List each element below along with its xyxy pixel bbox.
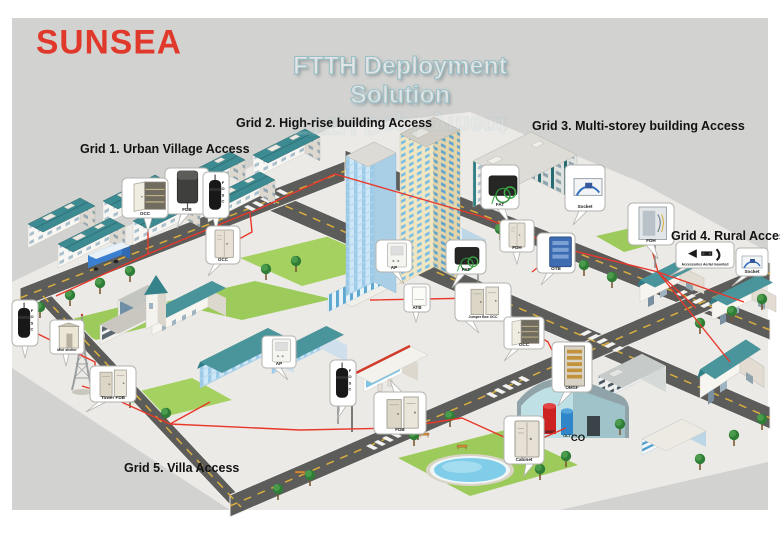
callout-label: Accessories Aerial mounted <box>682 263 729 267</box>
callout-label: OTB <box>551 266 561 271</box>
cabinet-icon <box>215 230 233 258</box>
cabinet-icon <box>509 223 525 247</box>
grid2-label: Grid 2. High-rise building Access <box>236 116 432 130</box>
grid3-label: Grid 3. Multi-storey building Access <box>532 119 745 133</box>
callout-label: AP <box>276 361 282 366</box>
callout-label: FDB <box>182 207 192 212</box>
shelter-icon <box>58 323 80 348</box>
socket-icon <box>574 179 602 196</box>
callout-label: ATB <box>412 305 422 310</box>
callout-label: Mini shelter <box>57 348 77 352</box>
callout-label: OMSF <box>565 385 578 390</box>
callout-label: OCC <box>140 211 151 216</box>
rack-icon <box>565 346 585 386</box>
co-label: CO <box>571 433 585 444</box>
callout-label: FOSC <box>348 368 353 393</box>
atb-icon <box>412 287 426 305</box>
callout-label: FAT <box>462 267 471 272</box>
otb-icon <box>550 237 572 267</box>
page: OMSF OLT CO <box>0 0 780 534</box>
cabinet-icon <box>515 421 539 457</box>
callout-label: FAT <box>496 202 505 207</box>
swimming-pool <box>426 454 514 486</box>
callout-label: Socket <box>577 204 593 209</box>
callout-label: FDH <box>646 238 656 243</box>
ap-icon <box>272 339 290 362</box>
grid5-label: Grid 5. Villa Access <box>124 461 239 475</box>
cabinet-open-icon <box>134 182 166 211</box>
glass-tower <box>346 142 396 296</box>
page-title-reflection: FTTH Deployment Solution <box>240 81 560 139</box>
callout-label: Jumper Box OCC <box>469 315 498 319</box>
callout-label: FOSC <box>30 308 35 333</box>
callout-label: FOSC <box>221 180 226 205</box>
grid4-label: Grid 4. Rural Access <box>671 229 780 243</box>
callout-label: FDB <box>395 427 405 432</box>
ap-icon <box>387 243 406 267</box>
grid1-label: Grid 1. Urban Village Access <box>80 142 250 156</box>
callout-label: FDH <box>512 245 522 250</box>
wallbox-icon <box>177 171 197 209</box>
callout-label: AP <box>391 265 397 270</box>
callout-label: OCC <box>519 342 530 347</box>
callout-label: Socket <box>744 269 760 274</box>
sunsea-logo: SUNSEA <box>36 22 182 62</box>
callout-label: Cabinet <box>516 457 533 462</box>
socket-icon <box>742 256 762 268</box>
callout-label: Tower FDB <box>101 395 126 400</box>
callout-label: OCC <box>218 257 229 262</box>
fdh-cabinet-icon <box>639 207 667 240</box>
